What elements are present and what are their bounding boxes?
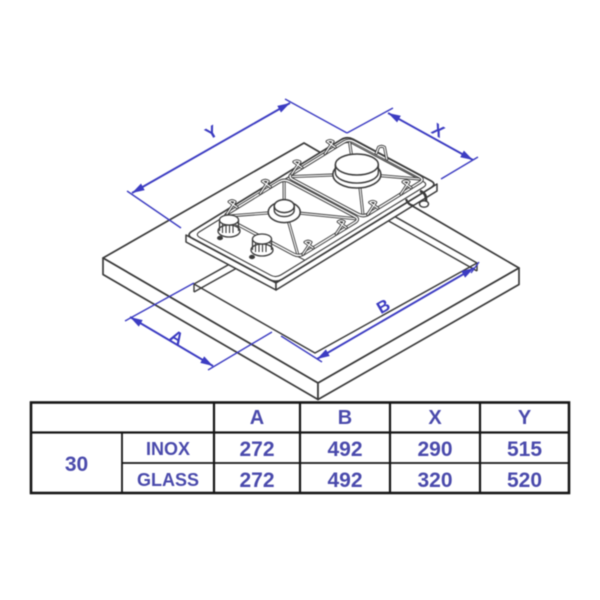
svg-text:GLASS: GLASS — [137, 470, 199, 490]
svg-text:272: 272 — [239, 438, 274, 461]
svg-text:515: 515 — [507, 438, 542, 461]
svg-text:492: 492 — [327, 469, 362, 492]
svg-text:290: 290 — [417, 438, 452, 461]
svg-text:A: A — [250, 407, 264, 429]
svg-text:520: 520 — [507, 469, 542, 492]
svg-text:INOX: INOX — [146, 439, 190, 459]
svg-text:272: 272 — [239, 469, 274, 492]
svg-text:492: 492 — [327, 438, 362, 461]
svg-text:30: 30 — [65, 453, 88, 476]
svg-text:320: 320 — [417, 469, 452, 492]
svg-text:B: B — [338, 407, 352, 429]
svg-text:X: X — [428, 407, 442, 429]
svg-text:Y: Y — [518, 407, 532, 429]
